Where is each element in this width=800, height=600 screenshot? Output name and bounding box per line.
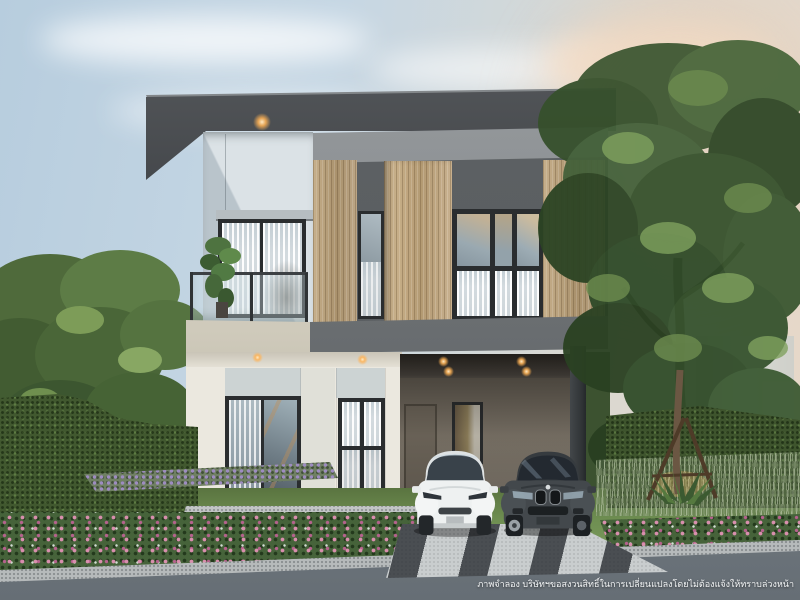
balcony-plant <box>196 228 248 324</box>
architectural-render-scene: ภาพจำลอง บริษัทฯขอสงวนสิทธิ์ในการเปลี่ยน… <box>0 0 800 600</box>
soffit-downlight <box>252 352 263 363</box>
railing-post <box>305 273 308 322</box>
garden-tree-with-stakes <box>628 362 738 532</box>
disclaimer-text: ภาพจำลอง บริษัทฯขอสงวนสิทธิ์ในการเปลี่ยน… <box>400 577 794 591</box>
wall-top-shadow <box>186 352 402 367</box>
wall-panel <box>336 368 385 398</box>
ground-window-pane <box>364 402 381 446</box>
main-window-pane <box>495 214 512 266</box>
wood-panel-left <box>313 160 357 322</box>
railing-post <box>190 272 193 324</box>
main-window-pane <box>457 214 490 266</box>
cloud <box>40 16 370 64</box>
wall-seam <box>225 134 226 212</box>
eave-downlight <box>253 113 271 131</box>
narrow-window-curtain <box>361 262 381 316</box>
white-suv-car <box>412 442 498 538</box>
main-window-pane-curtain <box>457 271 490 316</box>
ground-window-pane <box>342 402 360 446</box>
wood-panel-center <box>384 161 452 324</box>
wall-panel <box>225 368 301 396</box>
carport-downlight <box>443 366 454 377</box>
railing-post <box>250 273 253 322</box>
main-window-pane-curtain <box>495 271 512 316</box>
soffit-downlight <box>357 354 368 365</box>
dark-bmw-car <box>500 444 596 538</box>
